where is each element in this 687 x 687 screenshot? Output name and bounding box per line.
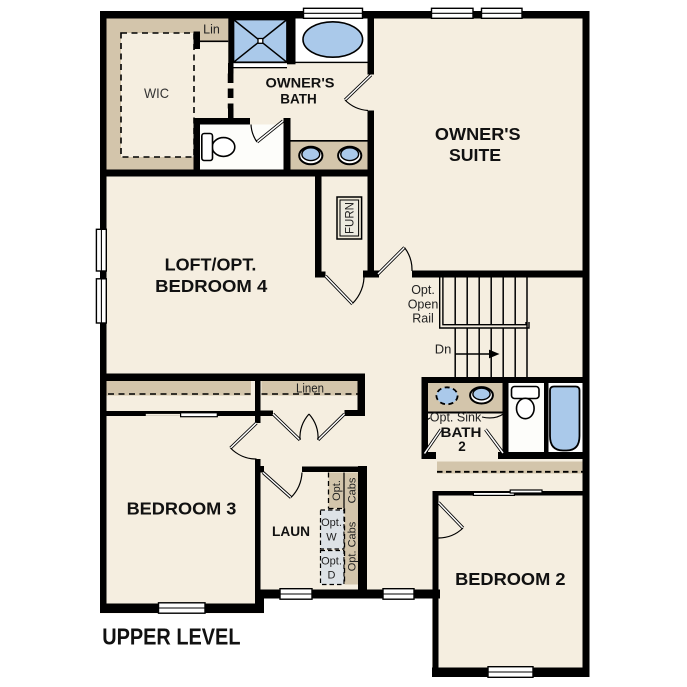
svg-text:UPPER LEVEL: UPPER LEVEL [102, 624, 240, 650]
svg-text:Dn: Dn [435, 342, 452, 357]
svg-text:Opt.: Opt. [411, 283, 435, 297]
svg-text:Rail: Rail [412, 312, 434, 326]
svg-text:D: D [328, 570, 336, 582]
svg-text:Opt.: Opt. [331, 480, 343, 501]
svg-text:Lin: Lin [203, 23, 220, 37]
svg-text:BATH: BATH [441, 425, 482, 440]
svg-text:Opt.: Opt. [321, 556, 342, 568]
svg-text:SUITE: SUITE [449, 145, 501, 165]
svg-text:Linen: Linen [296, 382, 324, 396]
svg-text:Opt. Sink: Opt. Sink [430, 411, 482, 425]
svg-text:BATH: BATH [280, 91, 317, 106]
svg-text:BEDROOM 3: BEDROOM 3 [127, 499, 237, 519]
svg-text:OWNER'S: OWNER'S [266, 75, 335, 90]
svg-text:Open: Open [408, 298, 439, 312]
svg-text:Opt. Cabs: Opt. Cabs [347, 521, 359, 571]
svg-text:BEDROOM 4: BEDROOM 4 [155, 276, 267, 296]
svg-text:Cabs: Cabs [346, 477, 358, 503]
svg-text:2: 2 [458, 439, 466, 454]
svg-text:WIC: WIC [144, 85, 169, 101]
svg-text:BEDROOM 2: BEDROOM 2 [455, 569, 566, 589]
svg-text:LAUN: LAUN [272, 523, 310, 539]
svg-text:OWNER'S: OWNER'S [435, 124, 521, 144]
svg-text:FURN: FURN [344, 202, 356, 234]
svg-text:Opt.: Opt. [321, 517, 342, 529]
svg-text:LOFT/OPT.: LOFT/OPT. [165, 254, 257, 274]
svg-text:W: W [326, 532, 337, 544]
